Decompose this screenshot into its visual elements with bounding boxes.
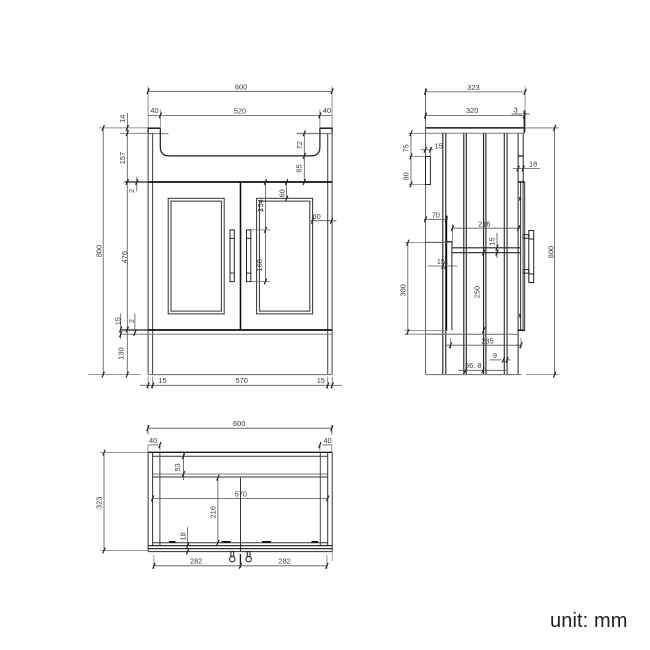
svg-text:40: 40 xyxy=(149,436,157,445)
svg-text:235: 235 xyxy=(481,336,493,345)
svg-text:70: 70 xyxy=(432,211,440,220)
svg-text:40: 40 xyxy=(324,436,332,445)
svg-text:3: 3 xyxy=(514,106,518,115)
svg-text:85: 85 xyxy=(295,164,304,172)
svg-text:130: 130 xyxy=(117,347,126,359)
svg-text:15: 15 xyxy=(488,237,497,245)
svg-text:476: 476 xyxy=(120,251,129,263)
svg-text:18: 18 xyxy=(529,160,537,169)
svg-text:320: 320 xyxy=(466,106,478,115)
svg-text:15: 15 xyxy=(158,376,166,385)
svg-text:216: 216 xyxy=(209,506,218,518)
svg-text:53: 53 xyxy=(173,463,182,471)
svg-text:600: 600 xyxy=(235,83,247,92)
svg-text:216: 216 xyxy=(478,219,490,228)
svg-text:300: 300 xyxy=(399,284,408,296)
svg-text:56. 8: 56. 8 xyxy=(465,361,481,370)
svg-text:520: 520 xyxy=(234,106,246,115)
svg-text:60: 60 xyxy=(277,189,286,197)
svg-text:570: 570 xyxy=(235,490,247,499)
svg-text:75: 75 xyxy=(402,144,411,152)
svg-text:800: 800 xyxy=(547,246,556,258)
svg-text:323: 323 xyxy=(95,497,104,509)
svg-text:72: 72 xyxy=(295,141,304,149)
svg-text:15: 15 xyxy=(435,141,443,150)
svg-text:600: 600 xyxy=(233,419,245,428)
svg-text:282: 282 xyxy=(190,557,202,566)
svg-text:2: 2 xyxy=(127,319,136,323)
svg-text:unit: mm: unit: mm xyxy=(550,610,627,632)
svg-text:60: 60 xyxy=(313,212,321,221)
svg-text:18: 18 xyxy=(178,532,187,540)
svg-text:40: 40 xyxy=(323,106,331,115)
svg-text:14: 14 xyxy=(118,115,127,123)
svg-text:15: 15 xyxy=(317,376,325,385)
svg-text:2: 2 xyxy=(127,189,136,193)
svg-text:15: 15 xyxy=(114,317,123,325)
svg-text:40: 40 xyxy=(150,106,158,115)
svg-text:282: 282 xyxy=(278,557,290,566)
svg-text:323: 323 xyxy=(467,83,479,92)
svg-text:154: 154 xyxy=(256,199,265,211)
svg-text:15: 15 xyxy=(437,257,445,266)
svg-text:90: 90 xyxy=(402,172,411,180)
svg-text:168: 168 xyxy=(255,259,264,271)
svg-text:157: 157 xyxy=(118,152,127,164)
svg-text:250: 250 xyxy=(473,286,482,298)
svg-text:800: 800 xyxy=(94,245,103,257)
svg-text:9: 9 xyxy=(493,351,497,360)
svg-text:570: 570 xyxy=(236,376,248,385)
